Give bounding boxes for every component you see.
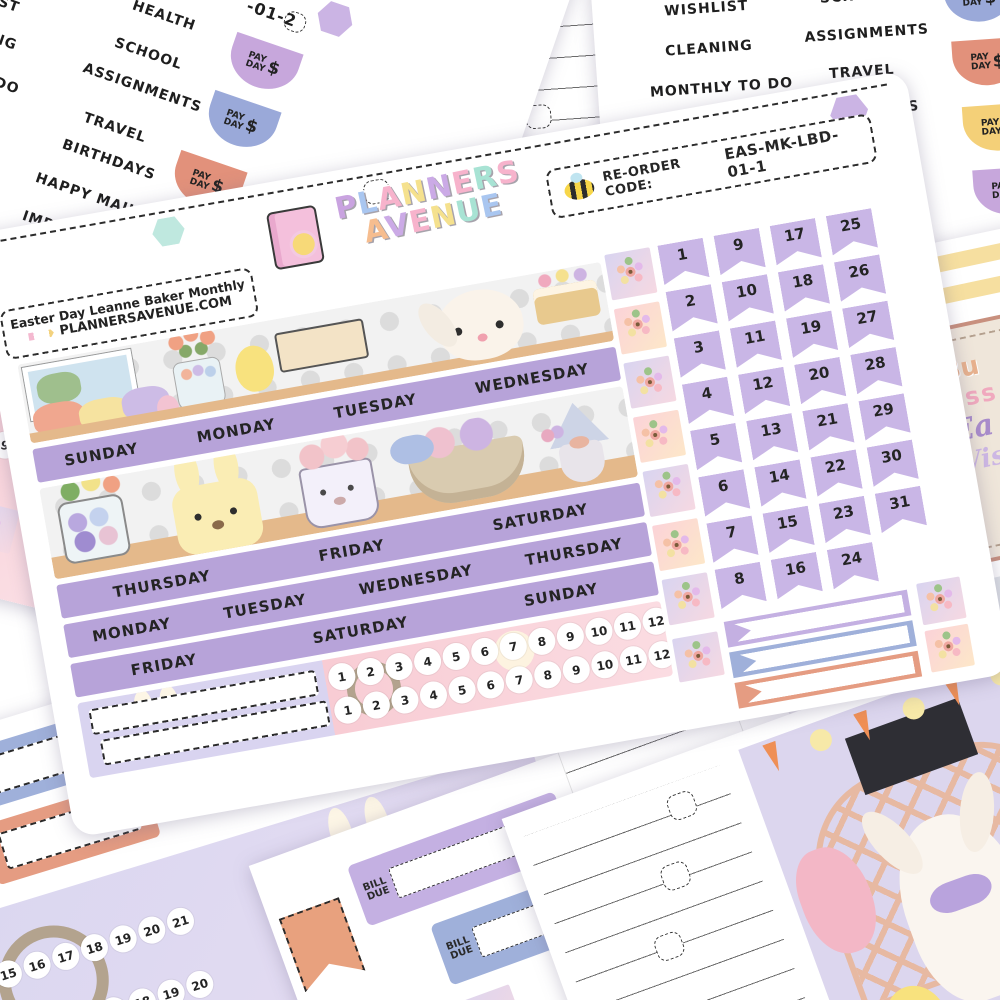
desk-icon [274, 318, 370, 373]
floral-square-sticker [672, 631, 725, 682]
floral-square-sticker [642, 464, 695, 517]
floral-square-sticker [916, 576, 967, 625]
weekday-label: FRIDAY [317, 536, 386, 565]
reorder-label: RE-ORDER CODE: [601, 151, 718, 200]
date-flag: 25 [826, 208, 878, 255]
category-label: SCHOOL [819, 0, 891, 7]
weekday-label: SUNDAY [63, 439, 140, 470]
weekday-label: WEDNESDAY [474, 360, 591, 398]
chick-icon [232, 343, 277, 395]
date-flag: 2 [666, 284, 718, 331]
notebook-icon [266, 205, 325, 271]
weekday-label: TUESDAY [332, 390, 418, 422]
date-flag: 29 [858, 393, 910, 440]
carrot-icon [853, 710, 876, 743]
reorder-code: EAS-MK-LBD-01-1 [723, 123, 861, 182]
weekday-label: MONDAY [91, 614, 173, 646]
reorder-code-pill: RE-ORDER CODE: EAS-MK-LBD-01-1 [545, 113, 879, 220]
date-flag: 4 [682, 377, 734, 424]
date-flag: 1 [657, 238, 709, 285]
date-flag: 28 [850, 347, 902, 394]
payday-sticker: PAYDAY$ [972, 166, 1000, 217]
payday-sticker: PAYDAY$ [951, 37, 1000, 88]
date-flag: 5 [690, 423, 742, 470]
floral-square-sticker [614, 301, 667, 354]
date-flag: 9 [714, 228, 766, 275]
floral-square-sticker [924, 624, 975, 673]
date-flag: 7 [706, 515, 758, 562]
date-flag: 11 [730, 320, 782, 367]
date-flag: 20 [794, 357, 846, 404]
floral-square-sticker [623, 355, 676, 408]
product-photo-easter-sticker-kit: WISHLIST CLEANING MONTHLY TO DO MONTHLY … [0, 0, 1000, 1000]
weekday-label: THURSDAY [112, 567, 212, 602]
date-flag: 30 [867, 440, 919, 487]
weekday-label: TUESDAY [222, 590, 308, 622]
date-flag: 24 [827, 542, 879, 589]
date-flag: 13 [746, 413, 798, 460]
date-flag: 22 [810, 449, 862, 496]
date-flag: 3 [674, 330, 726, 377]
category-label: ASSIGNMENTS [804, 21, 929, 46]
bee-icon [563, 177, 596, 202]
date-flag: 14 [754, 459, 806, 506]
weekday-label: SATURDAY [491, 500, 589, 535]
pencil-icon [28, 328, 55, 340]
date-flag: 21 [802, 403, 854, 450]
date-flag: 18 [778, 264, 830, 311]
weekday-label: THURSDAY [524, 534, 624, 569]
weekday-label: WEDNESDAY [358, 561, 475, 599]
date-flag: 15 [762, 506, 814, 553]
weekday-label: MONDAY [195, 415, 277, 447]
sun-icon [291, 231, 316, 256]
date-flag: 10 [722, 274, 774, 321]
bunny-garland-icon [807, 726, 835, 754]
hexagon-sticker-mint [149, 214, 188, 249]
date-flag: 27 [842, 301, 894, 348]
category-label: CLEANING [665, 38, 754, 60]
floral-square-sticker [430, 984, 536, 1000]
floral-square-sticker [662, 572, 715, 625]
carrot-icon [762, 741, 785, 774]
date-flag: 6 [698, 469, 750, 516]
weekday-label: SUNDAY [523, 579, 600, 610]
floral-square-sticker [652, 518, 705, 571]
date-flag: 17 [770, 218, 822, 265]
payday-sticker: PAYDAY$ [962, 102, 1000, 153]
floral-square-sticker [604, 247, 657, 300]
date-flag: 26 [834, 254, 886, 301]
date-flag: 12 [738, 367, 790, 414]
pennant-tab-salmon [279, 897, 366, 992]
date-flag: 31 [875, 486, 927, 533]
date-flag: 8 [715, 562, 767, 609]
date-flag: 23 [819, 496, 871, 543]
weekday-label: FRIDAY [129, 650, 198, 679]
date-flag: 19 [786, 311, 838, 358]
category-label: WISHLIST [664, 0, 749, 20]
weekday-label: SATURDAY [311, 613, 409, 648]
brand-logo: PLANNERS AVENUE [319, 155, 541, 255]
gnome-icon [533, 396, 626, 493]
bunny-garland-icon [900, 694, 928, 722]
date-flag: 16 [771, 552, 823, 599]
payday-sticker: PAYDAY$ [943, 0, 1000, 24]
floral-square-sticker [633, 410, 686, 463]
